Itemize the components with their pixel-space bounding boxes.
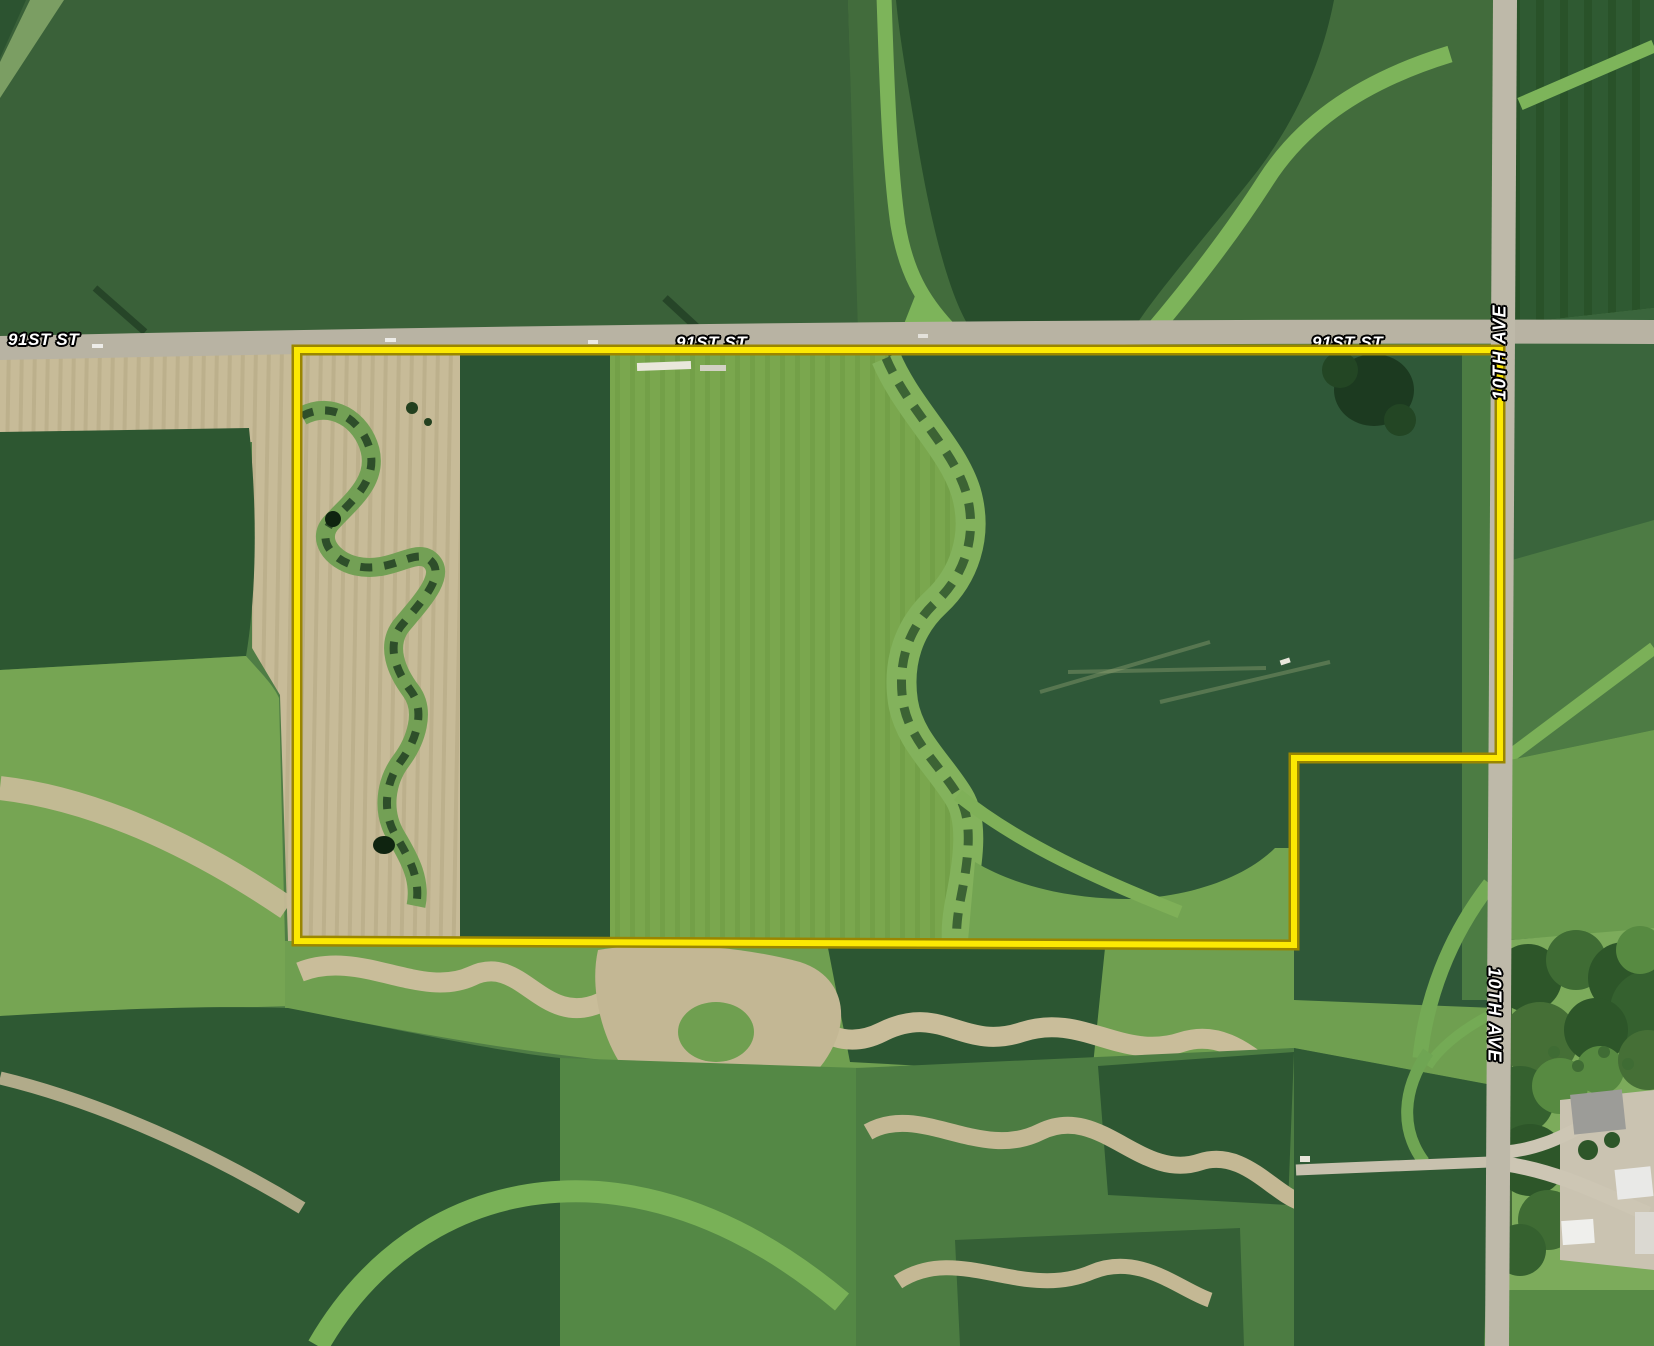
map-canvas[interactable]: 91ST ST 91ST ST 91ST ST 10TH AVE 10TH AV… (0, 0, 1654, 1346)
satellite-imagery (0, 0, 1654, 1346)
road-label-91st-st-west: 91ST ST (8, 330, 79, 350)
road-label-91st-st-center: 91ST ST (676, 333, 747, 353)
road-label-10th-ave-south: 10TH AVE (1484, 967, 1505, 1063)
trees-farmstead-layer (1486, 926, 1654, 1276)
road-label-10th-ave-north: 10TH AVE (1490, 304, 1511, 400)
road-label-91st-st-east: 91ST ST (1312, 333, 1383, 353)
fields-parcel-layer (302, 352, 1496, 1014)
farm-building (1570, 1089, 1626, 1134)
farm-building (1615, 1166, 1654, 1200)
farm-shed (1561, 1219, 1595, 1245)
farm-building (1635, 1212, 1654, 1254)
fields-north-layer (0, 0, 1654, 348)
